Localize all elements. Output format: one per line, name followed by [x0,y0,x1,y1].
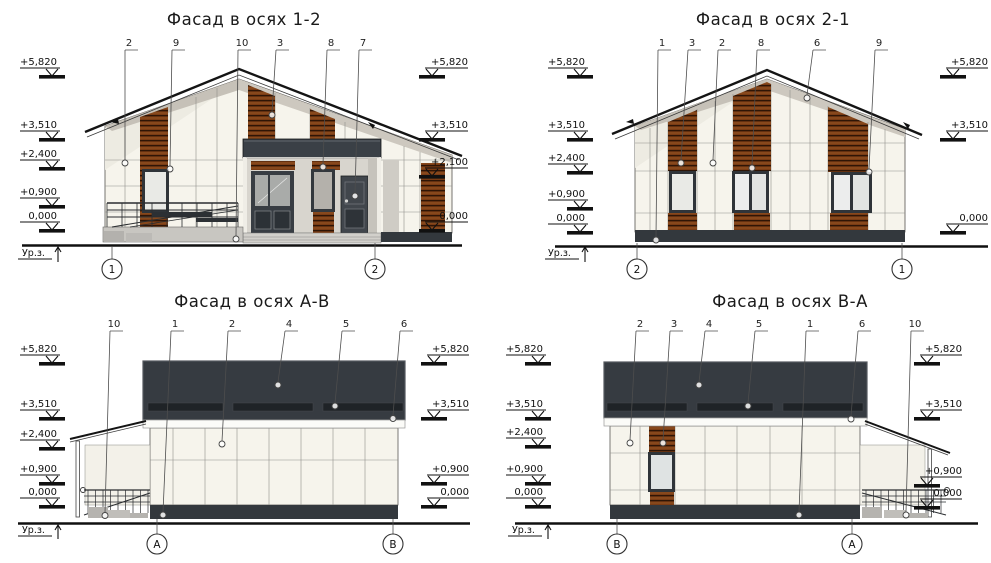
elevation-label: +5,820 [548,57,585,68]
callout-number: 10 [909,319,922,330]
elevation-label: +3,510 [951,120,988,131]
ground-level-text: Ур.з. [548,248,571,259]
callout-number: 8 [758,38,764,49]
window [831,172,872,213]
window [142,169,169,213]
callout-number: 10 [236,38,249,49]
elevation-marks-left: +5,820 +3,510 +2,400 +0,900 0,000 [20,57,65,233]
elevation-label: +5,820 [925,344,962,355]
elevation-label: +5,820 [431,57,468,68]
callout-number: 1 [807,319,813,330]
porch-fascia [243,139,381,158]
window [648,452,675,492]
facade-title: Фасад в осях А-В [174,292,330,311]
elevation-label: +3,510 [20,120,57,131]
callout-number: 1 [659,38,665,49]
elevation-label: +3,510 [20,399,57,410]
building-elevation [612,70,922,242]
elevation-label: 0,000 [440,487,469,498]
building-elevation [604,362,950,519]
elevation-label: +0,900 [925,466,962,477]
callout-number: 9 [173,38,179,49]
facade-title: Фасад в осях 1-2 [167,10,321,29]
roof-band [604,362,867,426]
callout-number: 8 [328,38,334,49]
elevation-label: 0,000 [28,487,57,498]
elevation-label: +2,400 [20,429,57,440]
elevation-label: +5,820 [506,344,543,355]
elevation-label: +2,400 [506,427,543,438]
elevation-marks-right: +5,820 +3,510 +0,900 0,000 [914,344,962,510]
elevation-label: +5,820 [20,57,57,68]
callout-number: 10 [108,319,121,330]
callout-number: 2 [229,319,235,330]
callout-number: 4 [706,319,712,330]
elevation-label: +3,510 [925,399,962,410]
elevation-label: +0,900 [432,464,469,475]
porch [70,421,150,518]
elevation-label: +5,820 [432,344,469,355]
callout-number: 5 [343,319,349,330]
facade-drawing-B-A: Фасад в осях В-А [500,285,991,563]
elevation-label: +0,900 [20,187,57,198]
elevation-marks-right: +5,820 +3,510 +0,900 0,000 [421,344,469,509]
elevation-label: +3,510 [431,120,468,131]
elevation-label: 0,000 [28,211,57,222]
axis-marker-left: 2 [627,243,647,279]
elevation-label: +5,820 [951,57,988,68]
ground-level-label: Ур.з. [18,525,61,539]
roof-band [143,361,405,428]
axis-label: 1 [899,264,906,276]
elevation-label: 0,000 [439,211,468,222]
axis-label: А [848,539,856,551]
callout-number: 6 [814,38,820,49]
elevation-label: +0,900 [548,189,585,200]
axis-label: 2 [372,264,379,276]
callout-number: 1 [172,319,178,330]
elevation-label: +2,400 [548,153,585,164]
ground-level-text: Ур.з. [22,248,45,259]
elevation-label: +0,900 [506,464,543,475]
elevation-label: 0,000 [959,213,988,224]
elevation-label: +5,820 [20,344,57,355]
axis-label: В [389,539,396,551]
porch [243,158,381,233]
ground-level-label: Ур.з. [545,247,588,262]
plinth [610,505,860,519]
plinth [635,230,905,242]
building-elevation [70,361,405,519]
ground-level-label: Ур.з. [18,247,61,262]
axis-label: А [153,539,161,551]
callout-number: 7 [360,38,366,49]
axis-marker-left: 1 [102,246,122,279]
axis-marker-right: 1 [892,243,912,279]
axis-marker-right: 2 [365,243,385,279]
elevation-label: +3,510 [432,399,469,410]
elevation-marks-right: +5,820 +3,510 0,000 [940,57,988,235]
drawing-sheet: Фасад в осях 1-2 [0,0,991,563]
ground-level-label: Ур.з. [508,525,551,539]
elevation-marks-left: +5,820 +3,510 +2,400 +0,900 0,000 [506,344,551,509]
axis-label: В [613,539,620,551]
elevation-label: +2,100 [431,157,468,168]
ground-level-text: Ур.з. [22,525,45,536]
facade-title: Фасад в осях В-А [712,292,868,311]
plinth [150,505,398,519]
axis-label: 1 [109,264,116,276]
callout-number: 4 [286,319,292,330]
callout-number: 6 [401,319,407,330]
callout-number: 5 [756,319,762,330]
callout-number: 2 [719,38,725,49]
callout-number: 3 [277,38,283,49]
elevation-marks-left: +5,820 +3,510 +2,400 +0,900 0,000 [20,344,65,509]
facade-drawing-A-B: Фасад в осях А-В [0,285,500,563]
facade-drawing-1-2: Фасад в осях 1-2 [0,0,500,290]
elevation-label: +3,510 [548,120,585,131]
plinth [381,232,452,242]
callout-number: 2 [637,319,643,330]
callout-number: 2 [126,38,132,49]
door [341,176,368,233]
facade-title: Фасад в осях 2-1 [696,10,850,29]
callout-number: 6 [859,319,865,330]
elevation-marks-left: +5,820 +3,510 +2,400 +0,900 0,000 [548,57,593,235]
facade-drawing-2-1: Фасад в осях 2-1 [540,0,991,290]
elevation-label: 0,000 [514,487,543,498]
elevation-label: +2,400 [20,149,57,160]
elevation-label: 0,000 [556,213,585,224]
building-elevation [85,69,462,243]
window [732,171,769,213]
elevation-label: 0,000 [933,488,962,499]
elevation-label: +0,900 [20,464,57,475]
axis-label: 2 [634,264,641,276]
ground-level-text: Ур.з. [512,525,535,536]
window [669,171,696,213]
callout-number: 3 [689,38,695,49]
callout-number: 9 [876,38,882,49]
elevation-label: +3,510 [506,399,543,410]
callout-number: 3 [671,319,677,330]
